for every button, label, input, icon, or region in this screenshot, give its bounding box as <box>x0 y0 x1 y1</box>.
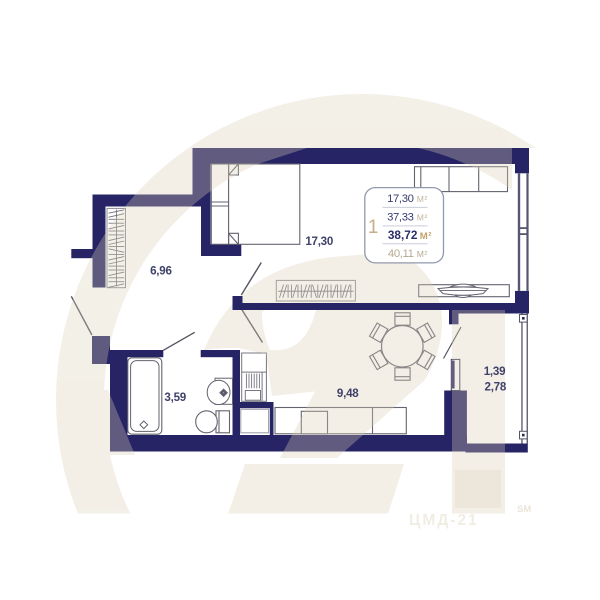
svg-text:9,48: 9,48 <box>337 387 359 400</box>
svg-text:38,72: 38,72 <box>388 228 418 242</box>
svg-text:SM: SM <box>517 504 531 515</box>
svg-text:6,96: 6,96 <box>150 265 172 278</box>
svg-text:1: 1 <box>368 217 379 238</box>
svg-text:М²: М² <box>417 249 428 259</box>
svg-text:37,33: 37,33 <box>387 211 414 223</box>
svg-text:2,78: 2,78 <box>485 381 507 394</box>
svg-text:17,30: 17,30 <box>305 235 333 248</box>
svg-text:ЦМД-21: ЦМД-21 <box>409 512 479 529</box>
svg-text:1,39: 1,39 <box>484 365 506 378</box>
svg-text:3,59: 3,59 <box>164 391 186 404</box>
svg-text:М²: М² <box>417 194 428 204</box>
svg-text:М²: М² <box>417 212 428 222</box>
svg-text:М²: М² <box>420 231 432 242</box>
svg-text:40,11: 40,11 <box>388 248 414 260</box>
svg-text:17,30: 17,30 <box>387 193 414 205</box>
